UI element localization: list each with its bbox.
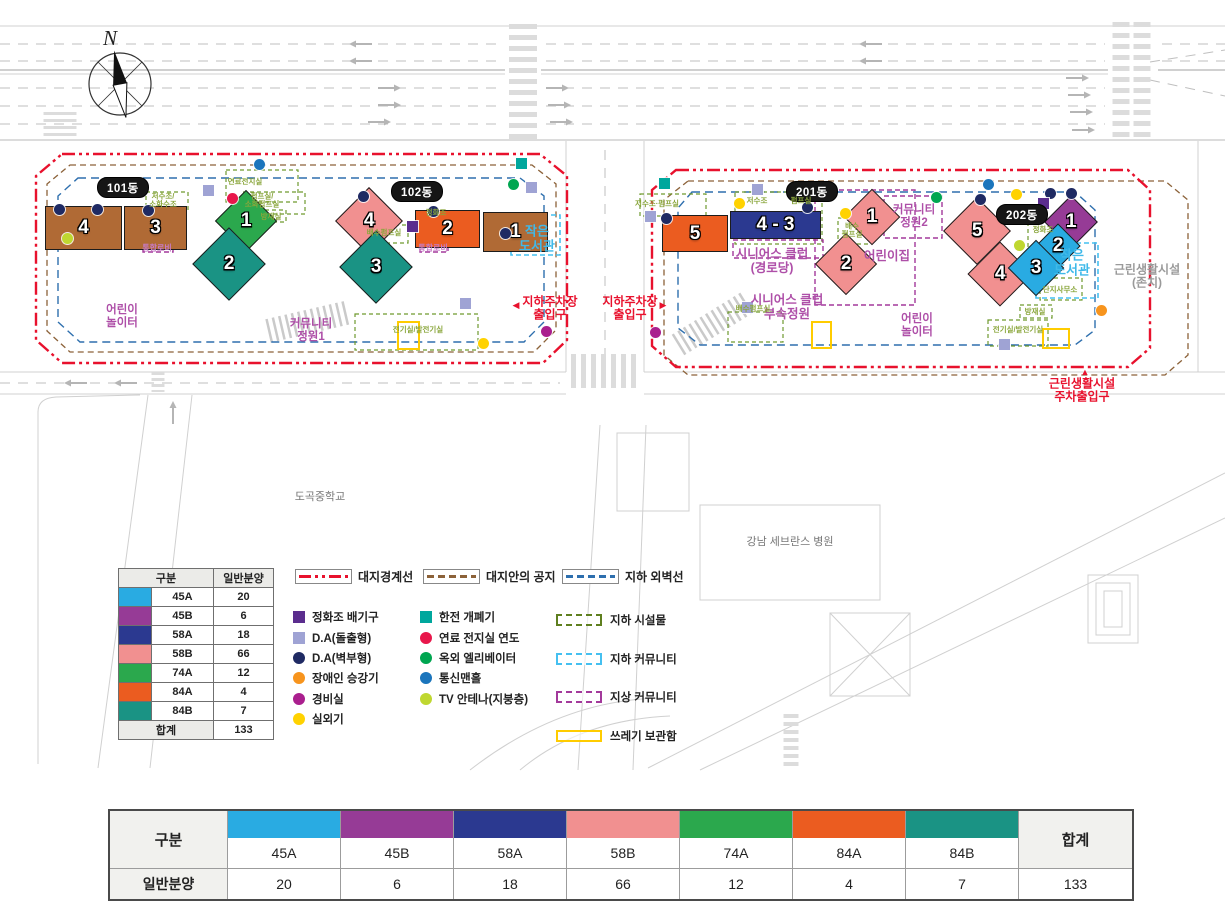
unit-type: 84B [152,702,214,721]
unit-sale-count: 4 [214,683,274,702]
58B-color-bar [567,811,679,838]
legend-table-type-header: 구분 [119,569,214,588]
legend-item-label: 장애인 승강기 [312,670,379,686]
legend-item-label: D.A(돌출형) [312,630,371,646]
legend-item-label: TV 안테나(지붕층) [439,691,528,707]
unit-row-84B: 84B7 [119,702,274,721]
parking-entrance-east-label: 지하주차장 출입구 [602,296,657,323]
legend-item-label: 지하 시설물 [610,612,666,628]
disabled-lift-icon [293,672,305,684]
legend-item-label: D.A(벽부형) [312,650,371,666]
bottom-table-type-header: 구분 [109,810,228,869]
table-header-row: 구분 45A45B58A58B74A84A84B합계 [109,810,1133,869]
legend-line-label: 대지경계선 [358,568,413,585]
legend-item-label: 지하 커뮤니티 [610,651,677,667]
da-protruding-marker [526,182,537,193]
fuel-cell-room-label: 연료전지실 [228,178,263,186]
unit-summary-table: 구분 45A45B58A58B74A84A84B합계 일반분양 20618661… [108,809,1134,901]
building-number: 2 [841,253,852,275]
outdoor-unit-marker [734,198,745,209]
parking-entrance-west-arrow: ◀ [513,300,520,310]
unit-sale-count: 66 [214,645,274,664]
building-number: 5 [690,223,701,245]
symbol-legend-left: 정화조 배기구D.A(돌출형)D.A(벽부형)장애인 승강기경비실실외기 [293,607,379,729]
unit-column-58B: 58B [567,810,680,869]
building-number: 2 [442,218,453,240]
legend-item-outdoor-elevator: 옥외 엘리베이터 [420,648,528,668]
table-total-row: 합계 133 [119,721,274,740]
unit-sale-count: 20 [228,869,341,901]
da-protruding-marker [752,184,763,195]
unit-type: 45B [341,838,453,868]
unit-sale-count: 66 [567,869,680,901]
legend-item-fuel-cell-flue: 연료 전지실 연도 [420,627,528,647]
da-protruding-marker [645,211,656,222]
area-legend: 지하 시설물지하 커뮤니티지상 커뮤니티쓰레기 보관함 [556,601,677,755]
trash-storage-icon [556,730,602,742]
legend-line-basement-wall: 지하 외벽선 [562,568,684,585]
guard-room-marker [541,326,552,337]
unit-row-45A: 45A20 [119,588,274,607]
unit-column-84A: 84A [793,810,906,869]
tv-antenna-icon [420,693,432,705]
da-protruding-marker [460,298,471,309]
legend-table-sale-header: 일반분양 [214,569,274,588]
building-number: 2 [224,253,235,275]
unit-sale-count: 7 [214,702,274,721]
comm-manhole-icon [420,672,432,684]
building-number: 1 [867,206,878,228]
disaster-room-202-label: 방재실 [1025,308,1046,316]
dogok-middle-school-label: 도곡중학교 [295,491,346,503]
outdoor-elevator-icon [420,652,432,664]
unit-row-45B: 45B6 [119,607,274,626]
guard-room-marker [650,327,661,338]
legend-item-label: 정화조 배기구 [312,609,379,625]
facility-parking-entrance-label: 근린생활시설 주차출입구 [1049,378,1115,405]
legend-table-total-label: 합계 [119,721,214,740]
basement-wall-sample-icon [562,569,619,584]
kepco-switch-icon [420,611,432,623]
unit-sale-count: 20 [214,588,274,607]
legend-item-label: 옥외 엘리베이터 [439,650,516,666]
septic-vent-icon [293,611,305,623]
legend-item-outdoor-unit: 실외기 [293,709,379,729]
45B-color-bar [341,811,453,838]
legend-line-label: 대지안의 공지 [486,568,556,585]
da-wall-marker [661,213,672,224]
unit-legend-table: 구분 일반분양 45A2045B658A1858B6674A1284A484B7… [118,568,274,740]
gangnam-severance-hospital-label: 강남 세브란스 병원 [746,536,833,548]
legend-item-comm-manhole: 통신맨홀 [420,668,528,688]
library-202-label: 작은 도서관 [1054,248,1090,277]
building-number: 1 [241,210,252,232]
community-garden2-label: 커뮤니티 정원2 [893,204,935,230]
da-wall-marker [1066,188,1077,199]
outdoor-unit-marker [840,208,851,219]
septic-102-label: 정화조 [426,209,447,217]
unit-sale-count: 18 [454,869,567,901]
58B-color-swatch [119,645,152,664]
symbol-legend-right: 한전 개폐기연료 전지실 연도옥외 엘리베이터통신맨홀TV 안테나(지붕층) [420,607,528,709]
underground-facility-icon [556,614,602,626]
unit-sale-count: 12 [214,664,274,683]
site-open-space-sample-icon [423,569,480,584]
neighborhood-facility-label: 근린생활시설 (존치) [1114,264,1180,291]
legend-item-da-wall: D.A(벽부형) [293,648,379,668]
disaster-room-101-label: 방재실 [261,213,282,221]
45A-color-swatch [119,588,152,607]
kepco-switch-marker [516,158,527,169]
building-number: 5 [972,220,983,242]
lobby-101-label: 통합로비 [142,245,171,254]
table-header-row: 구분 일반분양 [119,569,274,588]
legend-item-underground-community: 지하 커뮤니티 [556,640,677,679]
seniors-club-label: 시니어스 클럽 (경로당) [736,247,808,275]
pump-room-201-label: 펌프실 [791,197,812,205]
legend-item-ground-community: 지상 커뮤니티 [556,678,677,717]
da-wall-icon [293,652,305,664]
unit-sale-count: 6 [341,869,454,901]
unit-sale-count: 7 [906,869,1019,901]
74A-color-bar [680,811,792,838]
legend-item-label: 쓰레기 보관함 [610,728,677,744]
unit-type: 84B [906,838,1018,868]
unit-column-84B: 84B [906,810,1019,869]
building-number: 4 - 3 [756,214,794,236]
underground-community-icon [556,653,602,665]
da-wall-marker [975,194,986,205]
legend-item-label: 한전 개폐기 [439,609,495,625]
building-badge-101: 101동 [97,177,149,198]
legend-line-label: 지하 외벽선 [625,568,684,585]
legend-line-site-open-space: 대지안의 공지 [423,568,556,585]
table-value-row: 일반분양 20618661247133 [109,869,1133,901]
45B-color-swatch [119,607,152,626]
legend-item-underground-facility: 지하 시설물 [556,601,677,640]
complex-office-202-label: 단지사무소 [1043,286,1078,294]
unit-row-84A: 84A4 [119,683,274,702]
outdoor-unit-icon [293,713,305,725]
da-protruding-icon [293,632,305,644]
playground-201-label: 어린이 놀이터 [901,313,933,339]
guard-room-icon [293,693,305,705]
building-badge-102: 102동 [391,181,443,202]
fuel-cell-flue-marker [227,193,238,204]
unit-type: 74A [680,838,792,868]
water-tank-201-label: 저수조 [747,197,768,205]
da-protruding-marker [999,339,1010,350]
45A-color-bar [228,811,340,838]
electrical-room-102-label: 전기실/발전기실 [393,326,443,334]
outdoor-elevator-marker [931,192,942,203]
daycare-label: 어린이집 [864,249,910,263]
facility-parking-entrance-arrow: ▲ [1081,367,1090,377]
legend-item-trash-storage: 쓰레기 보관함 [556,717,677,756]
lobby-102-label: 통합로비 [418,245,447,254]
84B-color-bar [906,811,1018,838]
unit-sale-count: 6 [214,607,274,626]
legend-table-total-value: 133 [214,721,274,740]
septic-vent-marker [407,221,418,232]
unit-type: 84A [793,838,905,868]
unit-row-58B: 58B66 [119,645,274,664]
da-wall-marker [92,204,103,215]
kepco-switch-marker [659,178,670,189]
electrical-room-202-label: 전기실/발전기실 [993,326,1043,334]
unit-type: 45A [152,588,214,607]
water-tank-101-label: 저수조/ 소화수조 [149,193,177,210]
unit-type: 45A [228,838,340,868]
84B-color-swatch [119,702,152,721]
legend-item-da-protruding: D.A(돌출형) [293,627,379,647]
legend-item-kepco-switch: 한전 개폐기 [420,607,528,627]
da-wall-marker [54,204,65,215]
site-plan-page: N 4312432154 - 31254123101동102동201동202동어… [0,0,1225,912]
unit-column-45B: 45B [341,810,454,869]
legend-item-guard-room: 경비실 [293,689,379,709]
site-map-background [0,0,1225,912]
building-badge-202: 202동 [996,204,1048,225]
unit-column-74A: 74A [680,810,793,869]
compass-icon [89,49,151,118]
water-tank-pump-201-label: 저수조·펌프실 [635,200,679,208]
74A-color-swatch [119,664,152,683]
unit-column-45A: 45A [228,810,341,869]
building-number: 4 [78,217,89,239]
building-number: 3 [371,256,382,278]
disabled-lift-marker [1096,305,1107,316]
building-number: 4 [995,263,1006,285]
library-102-label: 작은 도서관 [519,224,555,253]
unit-row-58A: 58A18 [119,626,274,645]
outdoor-elevator-marker [508,179,519,190]
community-garden1-label: 커뮤니티 정원1 [290,318,332,344]
parking-entrance-east-arrow: ▶ [660,300,667,310]
legend-item-disabled-lift: 장애인 승강기 [293,668,379,688]
unit-sale-count: 12 [680,869,793,901]
legend-item-label: 실외기 [312,711,344,727]
legend-item-label: 경비실 [312,691,344,707]
septic-202-label: 정화조 [1033,226,1054,234]
unit-column-58A: 58A [454,810,567,869]
comm-manhole-marker [983,179,994,190]
parking-entrance-west-label: 지하주차장 출입구 [522,296,577,323]
legend-line-site-boundary: 대지경계선 [295,568,413,585]
unit-row-74A: 74A12 [119,664,274,683]
bottom-table-sale-header: 일반분양 [109,869,228,901]
unit-sale-count: 4 [793,869,906,901]
drain-pump-201a-label: 배수 펌프실 [842,223,863,240]
legend-item-label: 통신맨홀 [439,670,481,686]
building-201-5: 5 [662,215,728,252]
da-wall-marker [500,228,511,239]
drain-pump-102-label: 배수펌프실 [367,229,402,237]
site-boundary-sample-icon [295,569,352,584]
legend-item-label: 지상 커뮤니티 [610,689,677,705]
compass-north-label: N [103,26,117,51]
legend-item-septic-vent: 정화조 배기구 [293,607,379,627]
legend-item-tv-antenna: TV 안테나(지붕층) [420,689,528,709]
unit-type: 58A [152,626,214,645]
playground-101-label: 어린이 놀이터 [106,304,138,330]
unit-type: 58B [152,645,214,664]
bottom-table-total-value: 133 [1019,869,1134,901]
building-number: 3 [1031,257,1042,279]
fuel-cell-flue-icon [420,632,432,644]
ground-community-icon [556,691,602,703]
comm-manhole-marker [254,159,265,170]
unit-type: 58B [567,838,679,868]
building-number: 1 [1066,211,1077,233]
outdoor-unit-marker [1011,189,1022,200]
outdoor-unit-marker [478,338,489,349]
legend-item-label: 연료 전지실 연도 [439,630,519,646]
tv-antenna-marker [62,233,73,244]
unit-type: 74A [152,664,214,683]
pump-room-101-label: 펌프실/ 소화펌프실 [245,193,280,210]
58A-color-swatch [119,626,152,645]
84A-color-swatch [119,683,152,702]
unit-sale-count: 18 [214,626,274,645]
da-wall-marker [358,191,369,202]
unit-type: 84A [152,683,214,702]
84A-color-bar [793,811,905,838]
drain-pump-201b-label: 배수펌프실 [736,305,771,313]
da-protruding-marker [203,185,214,196]
building-201-4-3: 4 - 3 [730,211,821,239]
tv-antenna-marker [1014,240,1025,251]
unit-type: 58A [454,838,566,868]
building-number: 3 [150,217,161,239]
58A-color-bar [454,811,566,838]
bottom-table-total-header: 합계 [1019,810,1134,869]
unit-type: 45B [152,607,214,626]
